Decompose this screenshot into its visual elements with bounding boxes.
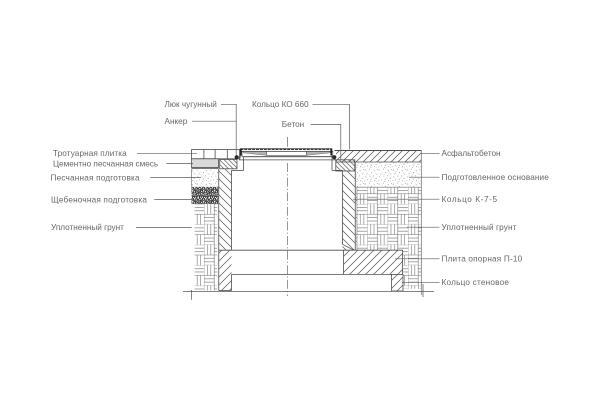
svg-text:Кольцо КО 660: Кольцо КО 660 (252, 100, 309, 109)
svg-text:Уплотненный грунт: Уплотненный грунт (442, 223, 517, 232)
svg-text:Тротуарная плитка: Тротуарная плитка (53, 149, 127, 158)
svg-text:Бетон: Бетон (282, 120, 304, 129)
svg-text:Цементно песчанная смесь: Цементно песчанная смесь (53, 159, 158, 168)
svg-text:Люк чугунный: Люк чугунный (165, 100, 217, 109)
svg-text:Кольцо К-7-5: Кольцо К-7-5 (442, 195, 498, 204)
svg-text:Анкер: Анкер (165, 117, 188, 126)
svg-text:Кольцо стеновое: Кольцо стеновое (442, 278, 510, 287)
svg-text:Подготовленное основание: Подготовленное основание (442, 173, 550, 182)
svg-text:Плита опорная П-10: Плита опорная П-10 (442, 255, 523, 264)
svg-text:Щебеночная подготовка: Щебеночная подготовка (51, 195, 147, 204)
svg-text:Асфальтобетон: Асфальтобетон (442, 149, 501, 158)
svg-text:Песчанная подготовка: Песчанная подготовка (51, 173, 140, 182)
svg-text:Уплотненный грунт: Уплотненный грунт (51, 223, 124, 232)
